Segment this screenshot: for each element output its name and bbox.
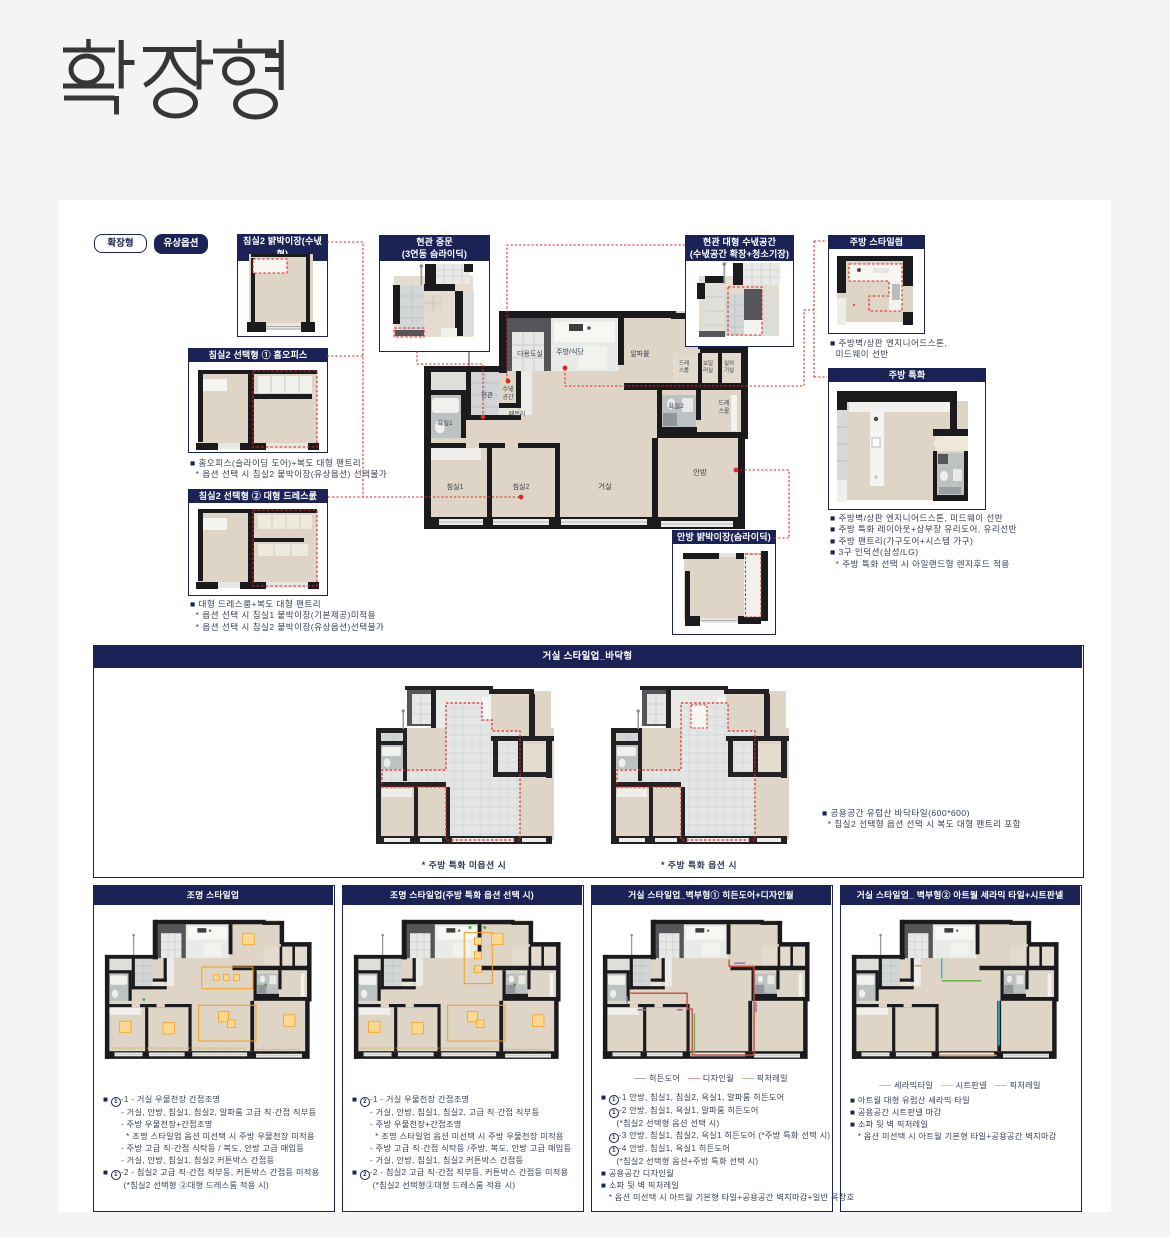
svg-text:욕실2: 욕실2 [668, 401, 684, 410]
svg-text:드레: 드레 [679, 359, 689, 367]
svg-text:스룴: 스룴 [718, 408, 730, 415]
svg-text:다용도실: 다용도실 [517, 349, 543, 358]
svg-text:수낷: 수낷 [502, 385, 514, 393]
svg-text:보일: 보일 [703, 359, 713, 367]
svg-text:욕실1: 욕실1 [437, 418, 453, 427]
svg-text:침실2: 침실2 [513, 482, 530, 491]
svg-text:실외: 실외 [724, 359, 734, 367]
svg-text:주방/식당: 주방/식당 [556, 347, 584, 356]
svg-text:러실: 러실 [703, 366, 713, 374]
svg-text:폐트리: 폐트리 [509, 410, 526, 418]
svg-text:현관: 현관 [481, 390, 493, 399]
svg-text:안방: 안방 [693, 467, 707, 477]
svg-text:거실: 거실 [598, 481, 612, 491]
svg-text:스룴: 스룴 [679, 367, 689, 374]
svg-text:알파룴: 알파룴 [630, 349, 650, 358]
svg-text:드레: 드레 [718, 399, 729, 407]
svg-text:기실: 기실 [724, 366, 734, 374]
svg-text:침실1: 침실1 [447, 482, 464, 491]
svg-text:공간: 공간 [502, 393, 514, 401]
